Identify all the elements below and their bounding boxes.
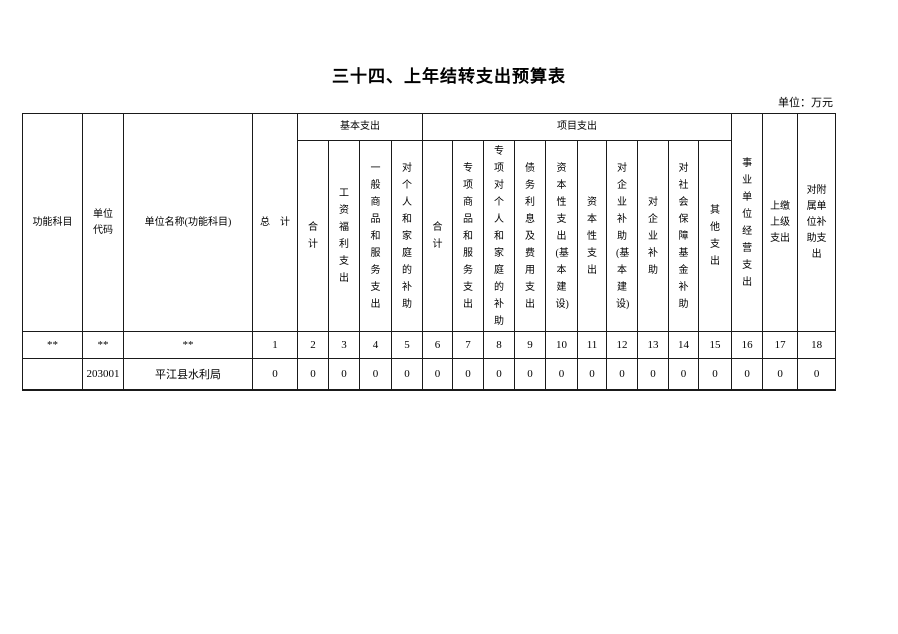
data-cell-unit-name: 平江县水利局 (124, 359, 253, 391)
header-wage-welfare-expenditure-label: 工资福利支出 (338, 185, 350, 287)
document-page: 三十四、上年结转支出预算表 单位：万元 功能科目 单位代码 单位名称(功能科目)… (0, 0, 898, 634)
numbering-cell: ** (23, 332, 83, 359)
numbering-cell: 7 (453, 332, 484, 359)
header-wage-welfare-expenditure: 工资福利支出 (329, 141, 360, 332)
numbering-cell: 1 (253, 332, 298, 359)
data-cell: 0 (607, 359, 638, 391)
header-project-subtotal-label: 合计 (432, 219, 444, 253)
data-cell: 0 (360, 359, 392, 391)
data-cell: 0 (669, 359, 699, 391)
header-unit-code-label: 单位代码 (92, 207, 115, 239)
header-function-subject-label: 功能科目 (33, 216, 73, 230)
header-social-security-fund-subsidy: 对社会保障基金补助 (669, 141, 699, 332)
numbering-cell: 10 (546, 332, 578, 359)
header-row-groups: 功能科目 单位代码 单位名称(功能科目) 总 计 基本支出 项目支出 事业单位经… (23, 114, 836, 141)
header-unit-name: 单位名称(功能科目) (124, 114, 253, 332)
header-basic-subtotal: 合计 (298, 141, 329, 332)
header-capital-expenditure: 资本性支出 (578, 141, 607, 332)
numbering-cell: 9 (515, 332, 546, 359)
header-subsidy-to-affiliated-units: 对附属单位补助支出 (798, 114, 836, 332)
unit-note: 单位：万元 (22, 94, 833, 110)
data-cell: 0 (515, 359, 546, 391)
header-group-basic-expenditure-label: 基本支出 (340, 120, 380, 134)
numbering-cell: ** (124, 332, 253, 359)
numbering-cell: 12 (607, 332, 638, 359)
budget-table: 功能科目 单位代码 单位名称(功能科目) 总 计 基本支出 项目支出 事业单位经… (22, 113, 836, 391)
header-payment-to-superior-label: 上缴上级支出 (769, 199, 792, 247)
header-unit-code: 单位代码 (83, 114, 124, 332)
header-function-subject: 功能科目 (23, 114, 83, 332)
data-cell-function-subject (23, 359, 83, 391)
data-cell: 0 (298, 359, 329, 391)
header-debt-interest-fee-expenditure-label: 债务利息及费用支出 (524, 160, 536, 313)
numbering-cell: 5 (392, 332, 423, 359)
header-other-expenditure-label: 其他支出 (709, 202, 721, 270)
numbering-cell: 8 (484, 332, 515, 359)
header-enterprise-subsidy: 对企业补助 (638, 141, 669, 332)
header-special-goods-services-label: 专项商品和服务支出 (462, 160, 474, 313)
data-cell: 0 (699, 359, 732, 391)
data-cell: 0 (578, 359, 607, 391)
header-capital-expenditure-basic-construction-label: 资本性支出(基本建设) (556, 160, 568, 313)
header-capital-expenditure-basic-construction: 资本性支出(基本建设) (546, 141, 578, 332)
data-cell: 0 (392, 359, 423, 391)
header-subsidy-to-affiliated-units-label: 对附属单位补助支出 (805, 183, 828, 263)
numbering-cell: 14 (669, 332, 699, 359)
numbering-cell: 13 (638, 332, 669, 359)
numbering-cell: 17 (763, 332, 798, 359)
data-cell: 0 (453, 359, 484, 391)
numbering-cell: 6 (423, 332, 453, 359)
page-title: 三十四、上年结转支出预算表 (0, 62, 898, 87)
header-payment-to-superior: 上缴上级支出 (763, 114, 798, 332)
numbering-cell: 4 (360, 332, 392, 359)
header-general-goods-services-label: 一般商品和服务支出 (370, 160, 382, 313)
numbering-cell: 16 (732, 332, 763, 359)
numbering-cell: 11 (578, 332, 607, 359)
data-cell: 0 (732, 359, 763, 391)
header-group-basic-expenditure: 基本支出 (298, 114, 423, 141)
data-cell-unit-code: 203001 (83, 359, 124, 391)
header-special-individual-family-subsidies-label: 专项对个人和家庭的补助 (493, 143, 505, 330)
data-cell: 0 (763, 359, 798, 391)
header-special-goods-services: 专项商品和服务支出 (453, 141, 484, 332)
header-enterprise-subsidy-basic-construction: 对企业补助(基本建设) (607, 141, 638, 332)
header-debt-interest-fee-expenditure: 债务利息及费用支出 (515, 141, 546, 332)
header-enterprise-subsidy-basic-construction-label: 对企业补助(基本建设) (616, 160, 628, 313)
header-grand-total-label: 总 计 (260, 216, 290, 230)
numbering-cell: 2 (298, 332, 329, 359)
column-numbering-row: ** ** ** 1 2 3 4 5 6 7 8 9 10 11 12 13 1… (23, 332, 836, 359)
numbering-cell: 15 (699, 332, 732, 359)
header-capital-expenditure-label: 资本性支出 (586, 194, 598, 279)
data-cell: 0 (329, 359, 360, 391)
header-individual-family-subsidies-label: 对个人和家庭的补助 (401, 160, 413, 313)
data-cell: 0 (546, 359, 578, 391)
header-project-subtotal: 合计 (423, 141, 453, 332)
data-cell: 0 (638, 359, 669, 391)
numbering-cell: 18 (798, 332, 836, 359)
header-individual-family-subsidies: 对个人和家庭的补助 (392, 141, 423, 332)
numbering-cell: 3 (329, 332, 360, 359)
header-basic-subtotal-label: 合计 (307, 219, 319, 253)
header-general-goods-services: 一般商品和服务支出 (360, 141, 392, 332)
data-row: 203001 平江县水利局 0 0 0 0 0 0 0 0 0 0 0 0 0 … (23, 359, 836, 391)
data-cell: 0 (253, 359, 298, 391)
header-special-individual-family-subsidies: 专项对个人和家庭的补助 (484, 141, 515, 332)
data-cell: 0 (423, 359, 453, 391)
header-group-project-expenditure-label: 项目支出 (557, 120, 597, 134)
data-cell: 0 (484, 359, 515, 391)
numbering-cell: ** (83, 332, 124, 359)
header-institution-operating-expenditure-label: 事业单位经营支出 (741, 155, 753, 291)
header-other-expenditure: 其他支出 (699, 141, 732, 332)
header-group-project-expenditure: 项目支出 (423, 114, 732, 141)
header-grand-total: 总 计 (253, 114, 298, 332)
header-social-security-fund-subsidy-label: 对社会保障基金补助 (678, 160, 690, 313)
header-enterprise-subsidy-label: 对企业补助 (647, 194, 659, 279)
header-institution-operating-expenditure: 事业单位经营支出 (732, 114, 763, 332)
header-unit-name-label: 单位名称(功能科目) (145, 216, 232, 230)
data-cell: 0 (798, 359, 836, 391)
